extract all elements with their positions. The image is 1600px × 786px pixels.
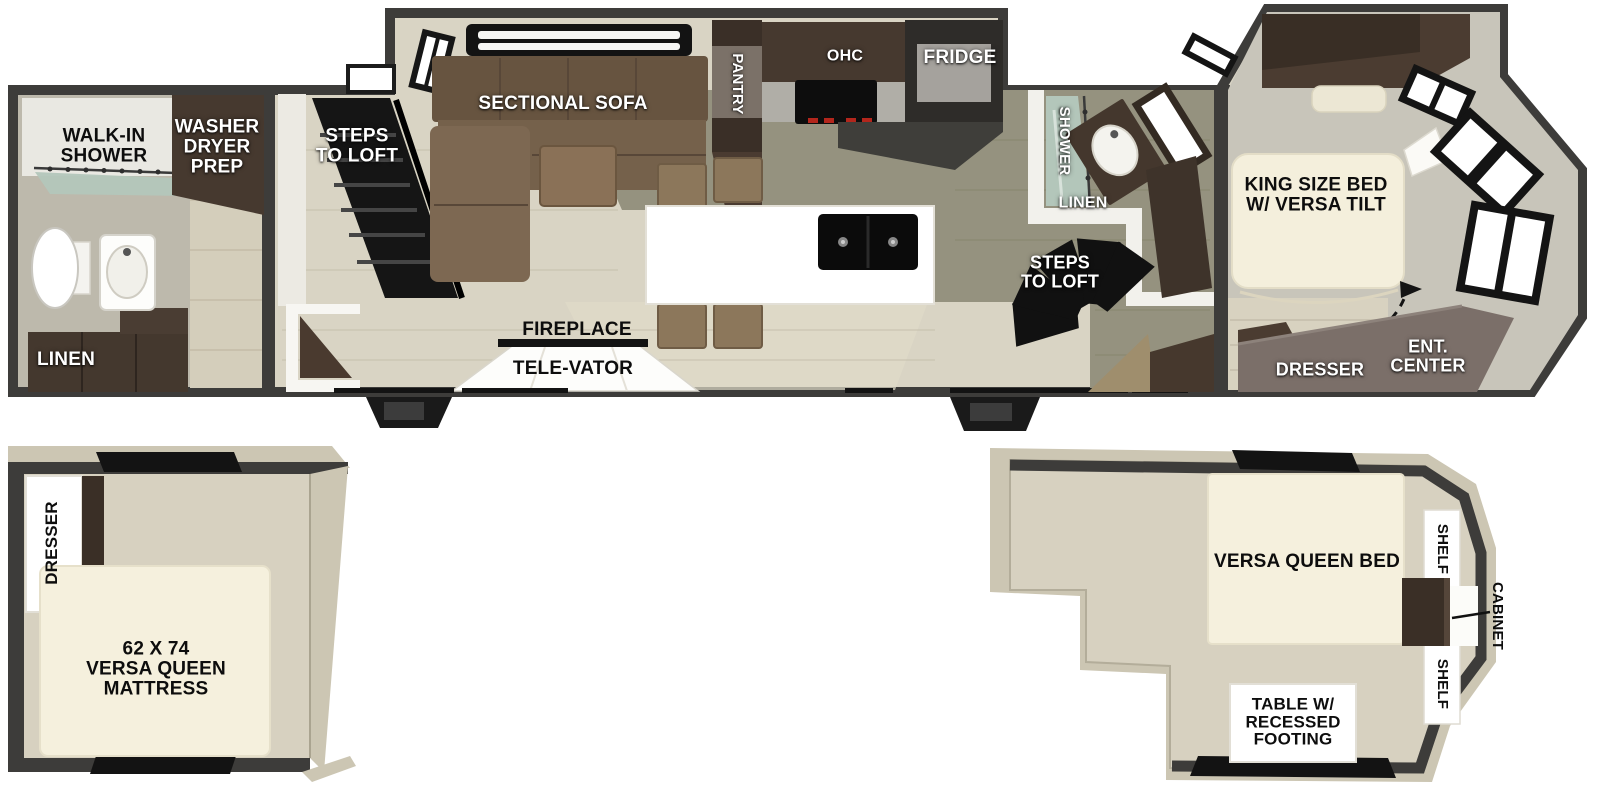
recessed-table (1230, 684, 1356, 762)
rv-floorplan-canvas: WALK-IN SHOWER WASHER DRYER PREP LINEN S… (0, 0, 1600, 786)
window (348, 66, 394, 92)
shelf-top (1424, 510, 1460, 588)
ohc-cabinet (762, 22, 905, 82)
loft-right (990, 448, 1496, 782)
living-skylight (466, 24, 692, 56)
toilet (32, 228, 78, 308)
loft-left (8, 446, 356, 782)
rear-bathroom (13, 90, 265, 392)
versa-queen-bed (1208, 474, 1404, 644)
bar-stool (714, 304, 762, 348)
entry-steps (366, 397, 1040, 431)
window (1181, 32, 1238, 78)
floorplan-drawing (0, 0, 1600, 786)
washer-dryer-cabinet (172, 95, 264, 215)
faucet (123, 248, 131, 256)
loft-cabinet (1402, 578, 1448, 646)
bar-stool (658, 164, 706, 208)
bed-pillow (1312, 86, 1386, 112)
bar-stool (714, 158, 762, 202)
skylight (1232, 450, 1360, 472)
walk-in-shower-pan (22, 98, 172, 176)
bedroom (1181, 12, 1578, 392)
window (1456, 200, 1555, 305)
loft-wardrobe (82, 476, 104, 578)
bedroom-wall (1214, 85, 1230, 392)
linen-cabinet (28, 332, 188, 392)
queen-mattress (40, 566, 270, 756)
shelf-bottom (1424, 644, 1460, 724)
king-bed (1232, 154, 1404, 288)
ottoman (540, 146, 616, 206)
skylight (96, 452, 242, 472)
range-stove (795, 80, 877, 124)
bar-stool (658, 304, 706, 348)
fireplace-unit (498, 339, 648, 347)
